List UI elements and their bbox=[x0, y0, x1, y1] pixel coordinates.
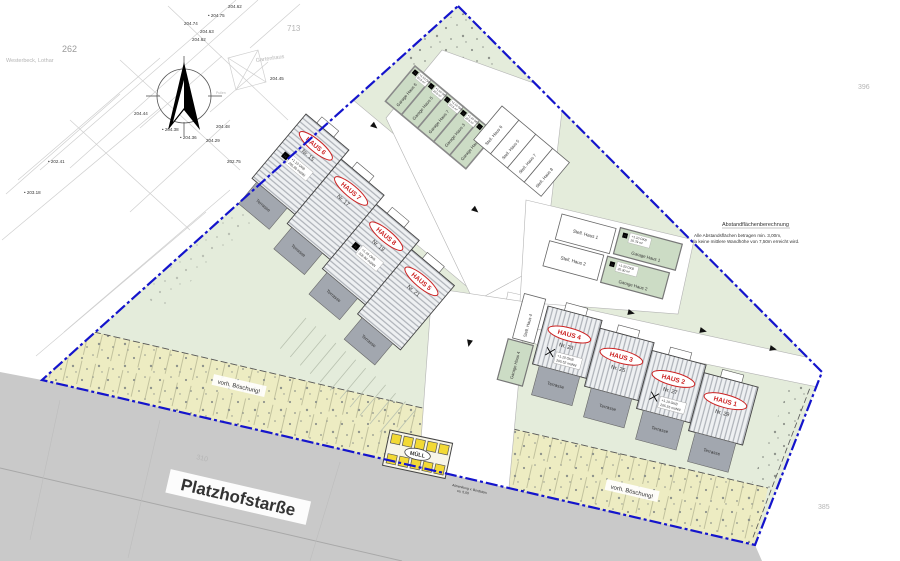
abstand-line: Alle Abstandsflächen betragen min. 3,00m… bbox=[694, 233, 781, 238]
elevation: 204.45 bbox=[270, 76, 284, 81]
parcel-number: 713 bbox=[287, 24, 301, 33]
elevation: • 204.38 bbox=[162, 127, 179, 132]
gartenhaus-label: Gartenhaus bbox=[255, 54, 285, 64]
abstand-title: Abstandflächenberechnung bbox=[722, 222, 789, 228]
parcel-number: 396 bbox=[858, 84, 870, 91]
elevation: • 202.41 bbox=[48, 159, 65, 164]
elevation: 202.75 bbox=[227, 159, 241, 164]
abstand-note: Abstandflächenberechnung Alle Abstandsfl… bbox=[692, 222, 799, 244]
site-plan-canvas: Garage Haus 6 Garage Haus 5 Garage Haus … bbox=[0, 0, 900, 561]
elevation: • 203.18 bbox=[24, 190, 41, 195]
parcel-number: 385 bbox=[818, 504, 830, 511]
owner-label: Westerbeck, Lothar bbox=[6, 58, 54, 64]
elevation: 204.74 bbox=[184, 21, 198, 26]
elevation: 204.62 bbox=[228, 4, 242, 9]
point-label: Pullen bbox=[216, 91, 226, 95]
elevation: • 204.36 bbox=[180, 135, 197, 140]
elevation: 204.63 bbox=[200, 29, 214, 34]
elevation: 204.44 bbox=[134, 111, 148, 116]
elevation: 204.48 bbox=[216, 124, 230, 129]
parcel-number: 262 bbox=[62, 44, 77, 54]
abstand-line: da keine mittlere Wandhöhe von 7,50m err… bbox=[692, 239, 799, 244]
elevation: • 204.75 bbox=[208, 13, 225, 18]
elevation-points: 204.62 • 204.75 204.74 204.63 204.62 204… bbox=[24, 4, 284, 195]
elevation: 204.62 bbox=[192, 37, 206, 42]
elevation: 204.29 bbox=[206, 138, 220, 143]
site-plan-drawing: Garage Haus 6 Garage Haus 5 Garage Haus … bbox=[0, 0, 900, 561]
